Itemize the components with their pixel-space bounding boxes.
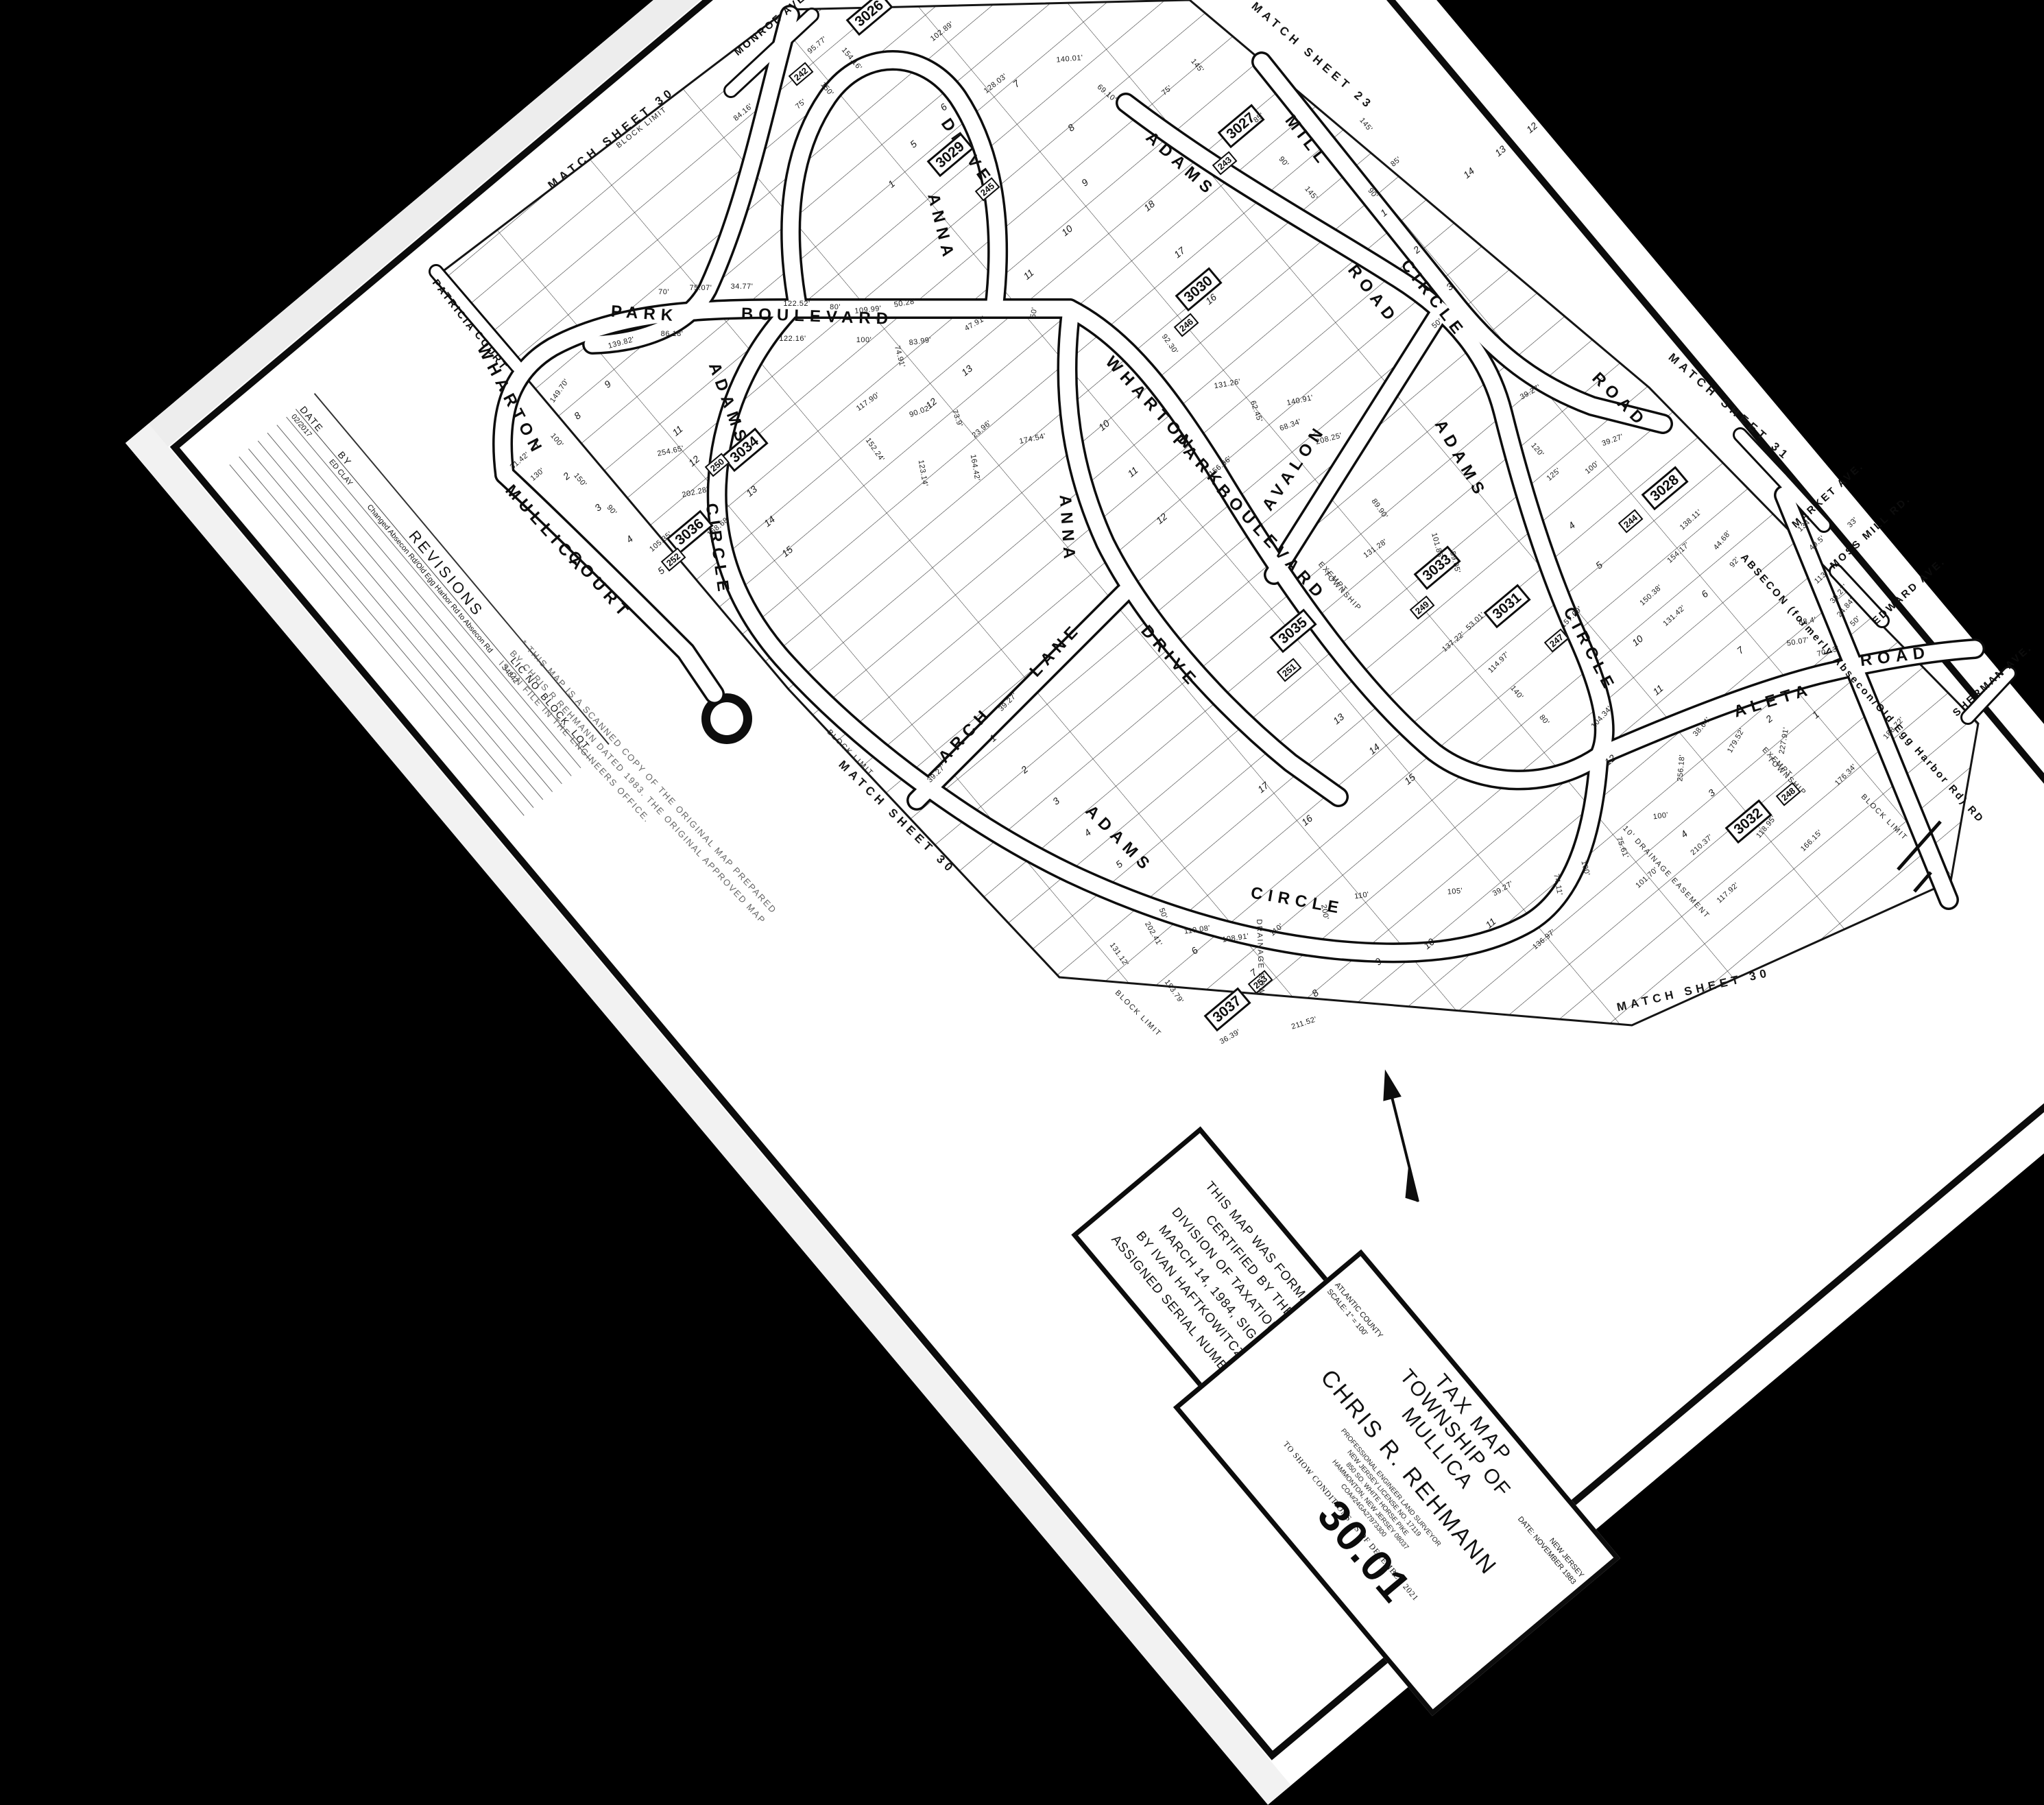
- sheet-border-frame: [170, 0, 2044, 1760]
- county: ATLANTIC COUNTY: [1332, 1280, 1397, 1354]
- scale: SCALE: 1" = 100': [1324, 1287, 1388, 1361]
- screenshot-root: { "sheet": { "number": "30.01", "paper_c…: [0, 0, 2044, 1580]
- state: NEW JERSEY: [1522, 1507, 1586, 1581]
- title-state-date: NEW JERSEY DATE: NOVEMBER 1983: [1514, 1507, 1586, 1587]
- title-county-scale: ATLANTIC COUNTY SCALE: 1" = 100': [1324, 1280, 1396, 1361]
- scanned-map-sheet: [125, 0, 2044, 1805]
- date: DATE: NOVEMBER 1983: [1514, 1513, 1578, 1587]
